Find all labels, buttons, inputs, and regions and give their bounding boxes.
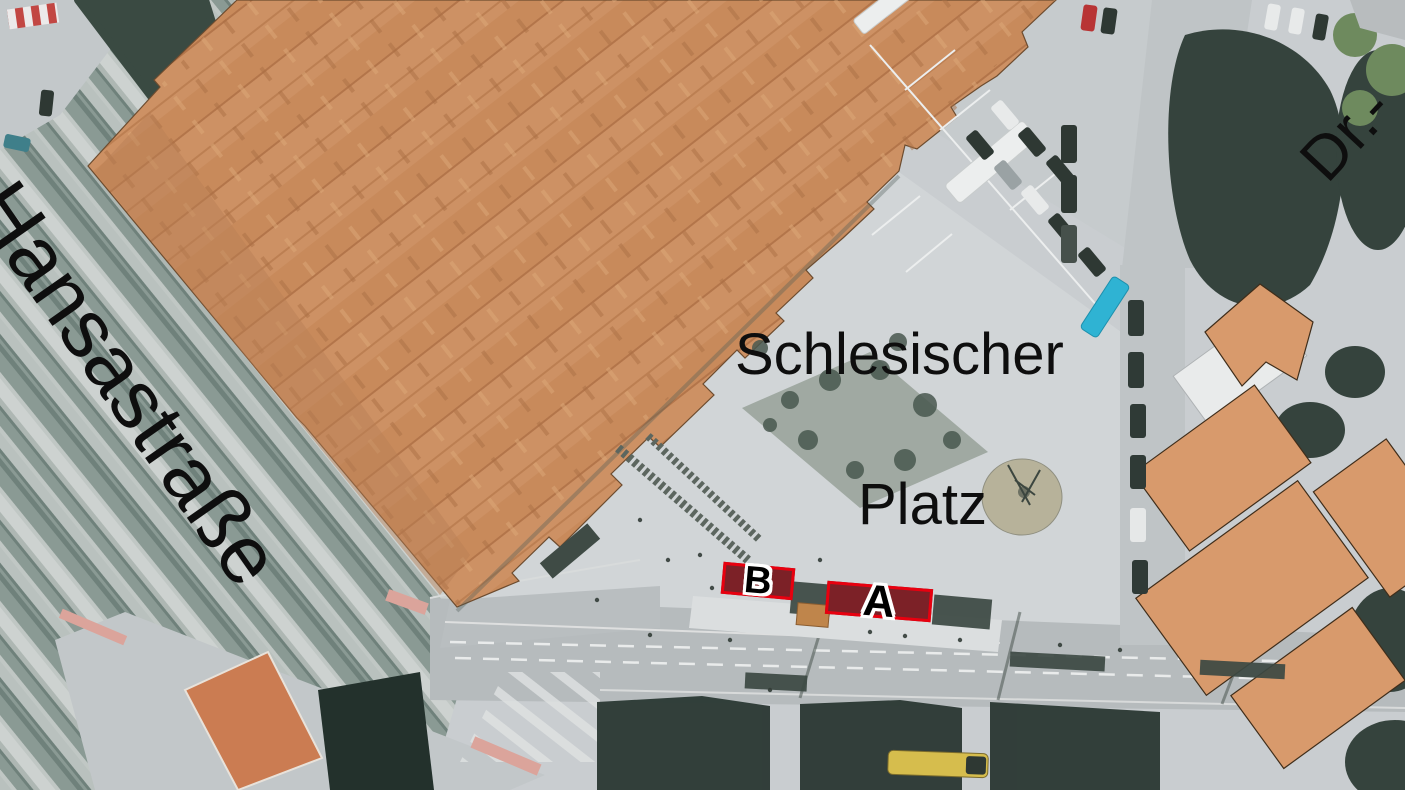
stop-a-label: A	[861, 578, 896, 624]
parked-car	[39, 89, 55, 116]
stop-b-label: B	[743, 561, 774, 601]
stop-area-b[interactable]: B	[721, 562, 796, 600]
building-shadows-bottom	[597, 696, 1160, 790]
tram-yellow	[888, 750, 989, 777]
building-dark-sw	[318, 672, 434, 790]
map-imagery	[0, 0, 1405, 790]
round-planting-bed	[982, 459, 1062, 535]
place-label-line1: Schlesischer	[735, 326, 1064, 384]
aerial-map: Schlesischer Platz Hansastraße Dr.- B A	[0, 0, 1405, 790]
place-label-line2: Platz	[858, 476, 987, 534]
